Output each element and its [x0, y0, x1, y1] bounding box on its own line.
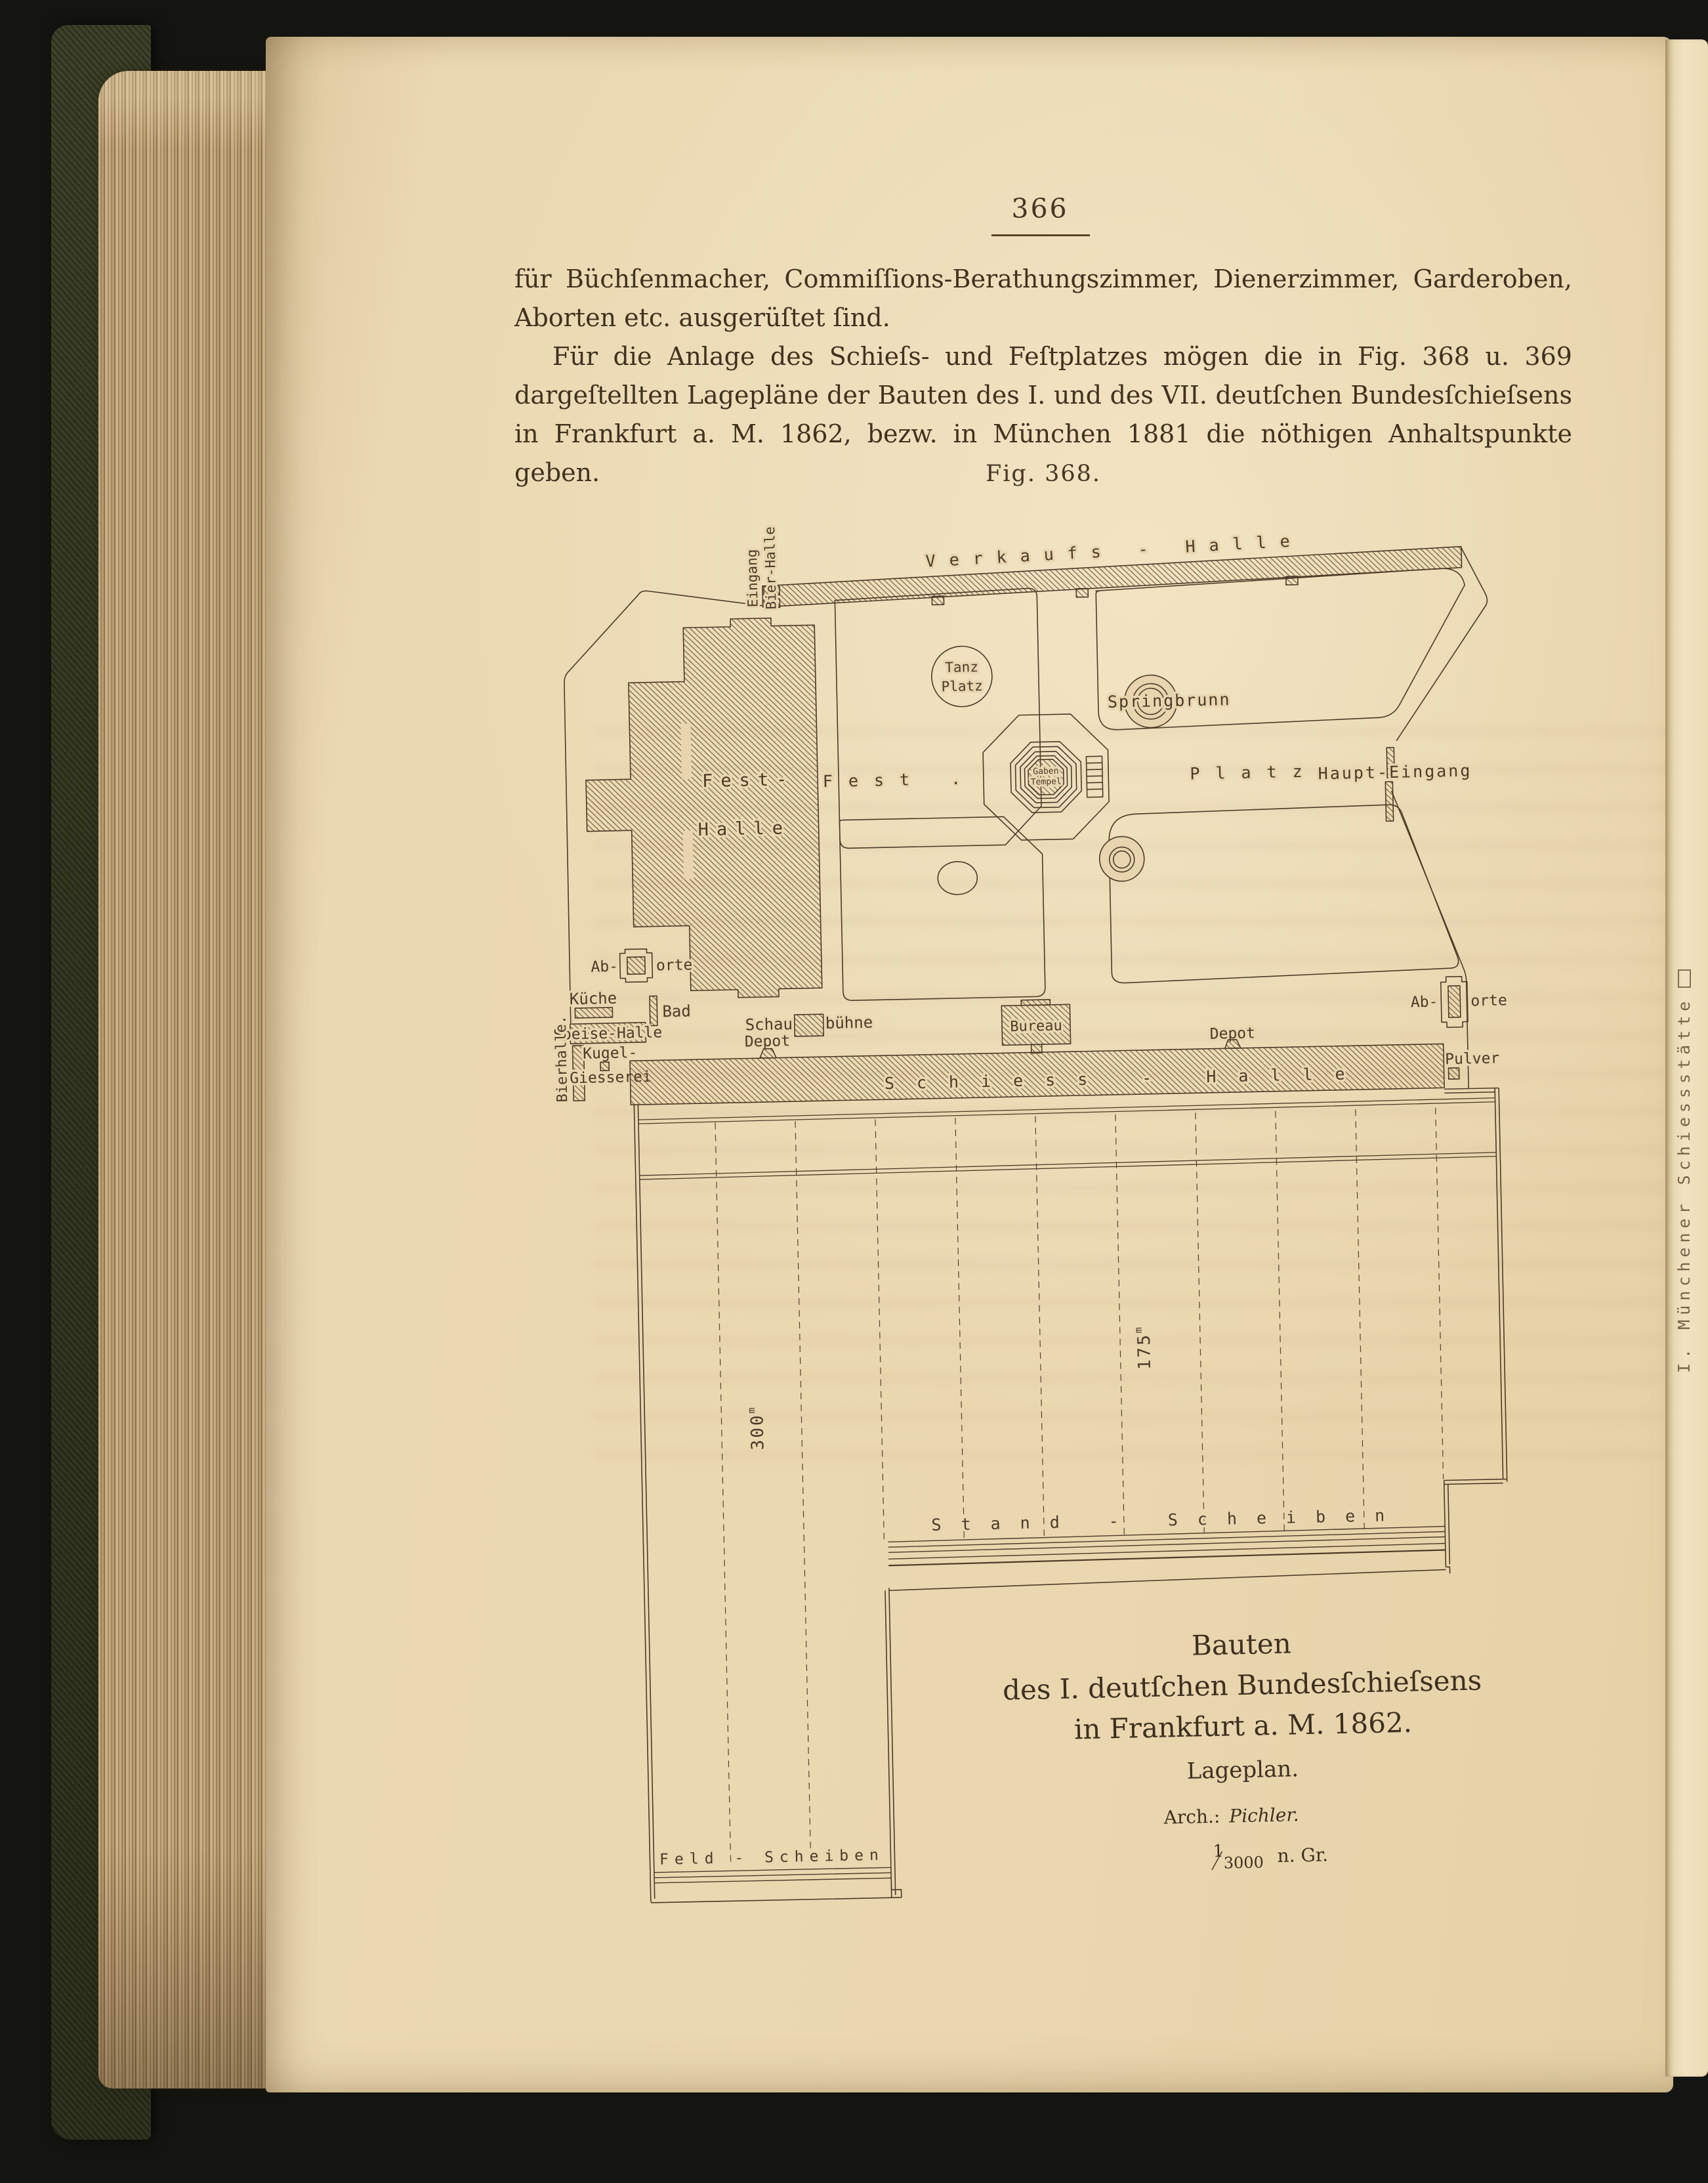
pulver-building	[1449, 1068, 1459, 1079]
pulver-label: Pulver	[1445, 1050, 1500, 1069]
fest-platz-label: Fest .	[823, 769, 977, 791]
text-line: Aborten etc. ausgerüſtet ſind.	[514, 299, 1572, 337]
kueche-label: Küche	[570, 989, 617, 1009]
svg-text:175: 175	[1135, 1333, 1155, 1370]
grounds-boundary-right	[1392, 547, 1490, 741]
caption-scale: n. Gr.	[1277, 1844, 1328, 1867]
caption-title: des I. deutſchen Bundesſchieſsens	[1003, 1664, 1482, 1706]
gaben-tempel-label: Gaben	[1033, 767, 1058, 777]
page-number-rule	[991, 234, 1090, 236]
aborte-west-core	[627, 957, 646, 975]
next-page-label: I. Münchener Schiessstätte	[1675, 997, 1694, 1373]
stand-scheiben-label: Stand - Scheiben	[931, 1506, 1404, 1535]
schaubuehne-building	[795, 1014, 824, 1036]
range-right-edge	[1436, 1088, 1509, 1574]
svg-text:m: m	[1133, 1327, 1144, 1333]
plate-box-icon	[1678, 969, 1691, 988]
pulver-enclosure	[1444, 1088, 1499, 1093]
parcel-southeast	[1108, 803, 1459, 983]
text-line: Für die Anlage des Schieſs- und Feſtplat…	[514, 337, 1572, 376]
book-page: 366 für Büchſenmacher, Commiſſions-Berat…	[266, 37, 1673, 2092]
feld-range-right-edge	[885, 1588, 896, 1897]
tanz-platz-label: Platz	[941, 678, 983, 694]
range-firing-lines	[638, 1098, 1497, 1179]
tanz-platz-label: Tanz	[945, 659, 978, 675]
bureau-label: Bureau	[1010, 1018, 1062, 1036]
range-distance-175: 175 m	[1133, 1327, 1155, 1370]
figure-label: Fig. 368.	[514, 461, 1572, 487]
plaza-steps-rungs	[1087, 763, 1103, 789]
verkaufs-halle-annex	[1076, 589, 1088, 597]
range-distance-300: 300 m	[745, 1407, 768, 1451]
svg-text:m: m	[745, 1407, 757, 1413]
fest-halle-passage	[683, 830, 694, 879]
range-left-edge	[634, 1105, 654, 1902]
fountain-basin	[1099, 836, 1144, 881]
page-number: 366	[948, 193, 1132, 224]
feld-range-bottom	[650, 1878, 902, 1903]
depot-west-label: Depot	[745, 1032, 791, 1050]
caption-architect: Arch.:	[1163, 1806, 1220, 1829]
fest-platz-label: Platz	[1190, 761, 1318, 783]
text-line: für Büchſenmacher, Commiſſions-Berathung…	[514, 260, 1572, 299]
pond	[938, 861, 978, 895]
gaben-tempel-label: Tempel	[1031, 776, 1062, 787]
aborte-west-label: orte	[656, 956, 693, 974]
fest-halle-label: Halle	[698, 818, 791, 840]
bad-label: Bad	[662, 1002, 691, 1021]
next-page-vertical-text: I. Münchener Schiessstätte	[1675, 914, 1694, 1373]
page-stack-edge	[98, 71, 278, 2088]
fest-halle-building	[583, 617, 822, 1000]
aborte-east-label: Ab-	[1411, 994, 1438, 1011]
stand-scheiben-wall-base	[888, 1550, 1446, 1565]
caption-subtitle: Lageplan.	[1186, 1756, 1299, 1785]
bad-building	[650, 996, 657, 1025]
next-page-edge: I. Münchener Schiessstätte	[1665, 39, 1708, 2077]
feld-scheiben-wall	[654, 1867, 891, 1883]
eingang-label: Eingang	[744, 549, 761, 608]
springbrunn-label: Springbrunn	[1108, 690, 1231, 711]
caption-title: in Frankfurt a. M. 1862.	[1073, 1706, 1412, 1746]
haupt-eingang-post	[1385, 782, 1393, 821]
caption-scale: 3000	[1224, 1853, 1264, 1872]
bier-halle-label: Bier-Halle	[762, 526, 780, 610]
aborte-east-core	[1448, 986, 1461, 1017]
haupt-eingang-label: Haupt-Eingang	[1318, 761, 1472, 783]
verkaufs-halle-annex	[932, 596, 944, 604]
range-south-edge	[889, 1569, 1446, 1590]
parcel-northwest	[835, 588, 1042, 848]
fest-halle-label: Fest-	[702, 769, 795, 792]
range-lane-lines	[715, 1108, 1451, 1866]
feld-scheiben-label: Feld - Scheiben	[659, 1846, 885, 1868]
site-plan-figure: Verkaufs - Halle Eingang Bier-Halle Fest…	[551, 517, 1549, 1909]
body-text-block: für Büchſenmacher, Commiſſions-Berathung…	[514, 260, 1572, 492]
svg-text:300: 300	[747, 1413, 768, 1451]
caption-title: Bauten	[1191, 1627, 1291, 1661]
aborte-west-label: Ab-	[591, 958, 618, 976]
kugelgiesserei-label: Kugel-	[583, 1044, 638, 1063]
fest-halle-passage	[680, 723, 692, 779]
tanz-platz-circle	[931, 646, 993, 708]
kueche-building	[575, 1007, 612, 1018]
parcel-southwest	[839, 816, 1045, 1000]
schaubuehne-label: bühne	[825, 1013, 873, 1033]
bierhalle-label: Bierhalle.	[553, 1015, 572, 1103]
bureau-building-tab	[1021, 1000, 1050, 1006]
aborte-east-label: orte	[1470, 992, 1507, 1009]
caption-architect-name: Pichler.	[1228, 1804, 1299, 1827]
text-line: dargeſtellten Lagepläne der Bauten des I…	[514, 376, 1572, 415]
schaubuehne-label: Schau	[745, 1015, 793, 1034]
